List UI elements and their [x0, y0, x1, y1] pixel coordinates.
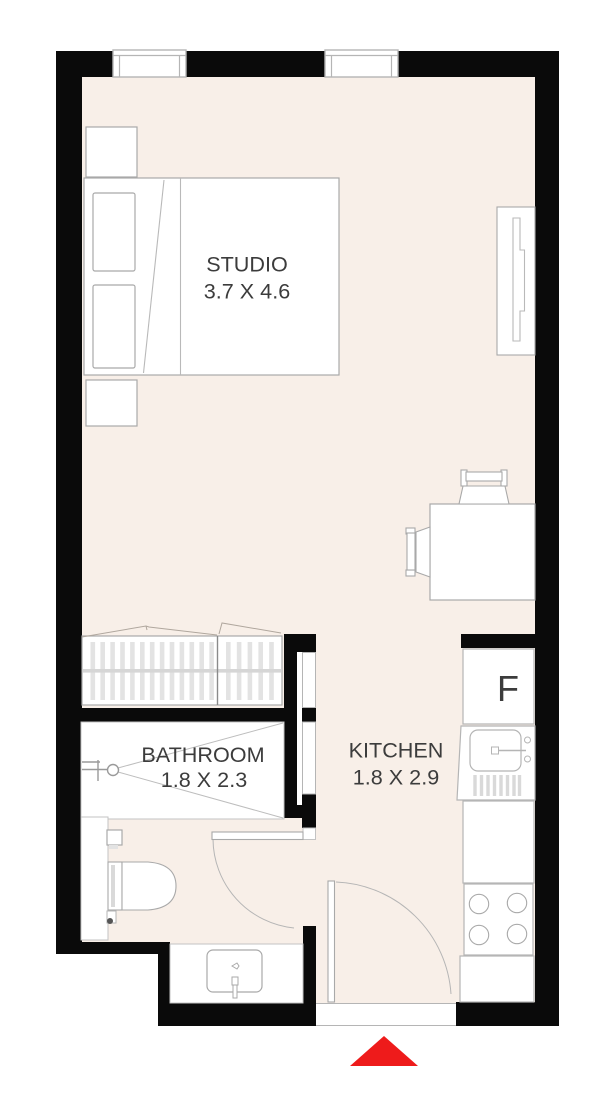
svg-text:1.8 X 2.9: 1.8 X 2.9 — [353, 765, 439, 790]
svg-text:BATHROOM: BATHROOM — [141, 742, 264, 767]
svg-text:KITCHEN: KITCHEN — [349, 738, 444, 763]
svg-text:STUDIO: STUDIO — [206, 252, 288, 277]
svg-text:F: F — [497, 668, 519, 709]
svg-text:1.8 X 2.3: 1.8 X 2.3 — [161, 767, 247, 792]
svg-text:3.7 X 4.6: 3.7 X 4.6 — [204, 279, 290, 304]
